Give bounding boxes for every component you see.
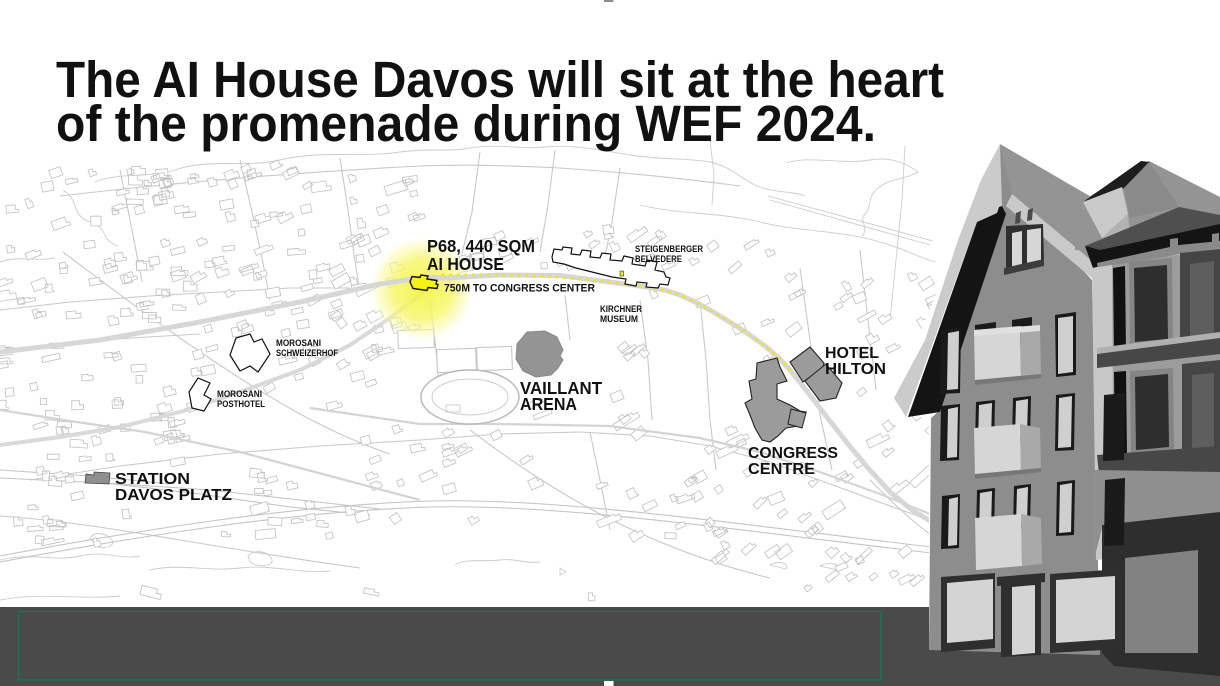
svg-text:SCHWEIZERHOF: SCHWEIZERHOF — [276, 348, 339, 358]
svg-text:POSTHOTEL: POSTHOTEL — [217, 399, 266, 409]
svg-text:BELVEDERE: BELVEDERE — [635, 254, 682, 264]
svg-text:AI HOUSE: AI HOUSE — [427, 254, 504, 274]
svg-text:MUSEUM: MUSEUM — [600, 314, 638, 324]
svg-text:HILTON: HILTON — [825, 361, 886, 378]
svg-text:750M TO CONGRESS CENTER: 750M TO CONGRESS CENTER — [444, 283, 595, 295]
svg-text:DAVOS PLATZ: DAVOS PLATZ — [115, 487, 233, 504]
svg-text:ARENA: ARENA — [520, 394, 577, 414]
svg-text:MOROSANI: MOROSANI — [217, 389, 262, 399]
svg-text:MOROSANI: MOROSANI — [276, 338, 321, 348]
svg-text:STATION: STATION — [115, 471, 190, 488]
svg-text:STEIGENBERGER: STEIGENBERGER — [635, 244, 704, 254]
svg-text:KIRCHNER: KIRCHNER — [600, 304, 643, 314]
svg-text:HOTEL: HOTEL — [825, 345, 879, 362]
svg-text:CENTRE: CENTRE — [748, 461, 815, 478]
svg-text:of the promenade during WEF 20: of the promenade during WEF 2024. — [56, 95, 876, 152]
svg-text:P68, 440 SQM: P68, 440 SQM — [427, 236, 535, 256]
svg-text:CONGRESS: CONGRESS — [748, 445, 838, 462]
